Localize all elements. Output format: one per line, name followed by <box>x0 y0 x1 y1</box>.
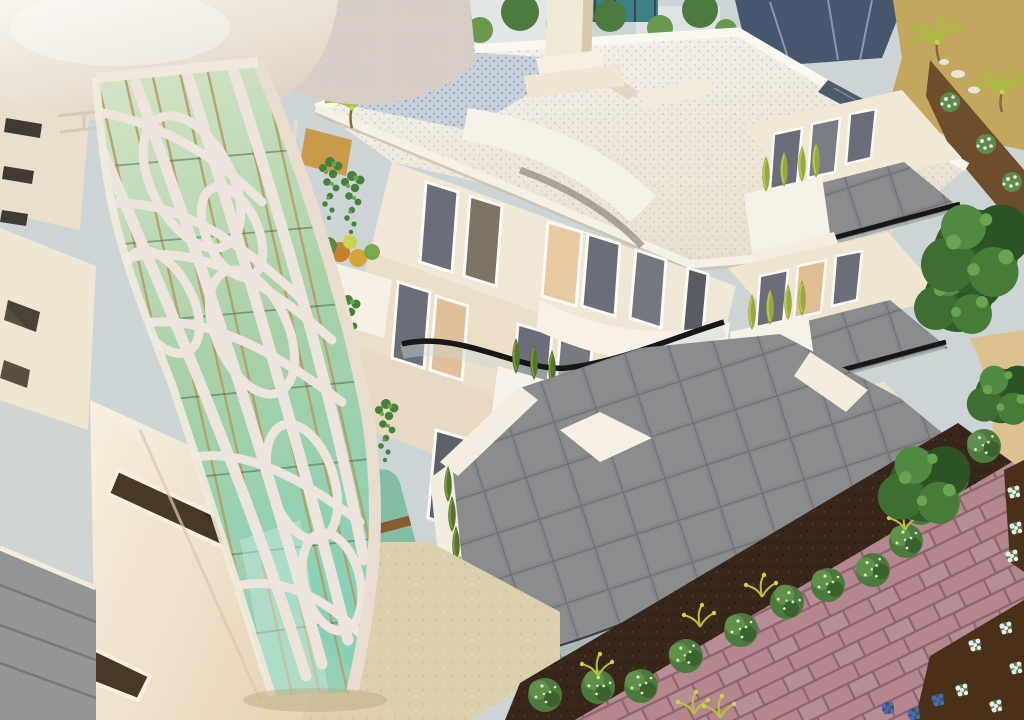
white-flowering-bush <box>1002 172 1022 192</box>
white-flowering-bush <box>940 92 960 112</box>
tree <box>967 366 1024 425</box>
window <box>464 196 502 286</box>
window <box>582 234 620 316</box>
window-warm-glow <box>430 296 468 380</box>
cypress-plant-yellow <box>748 294 756 330</box>
architectural-render <box>0 0 1024 720</box>
render-canvas <box>0 0 1024 720</box>
window <box>420 182 458 272</box>
hanging-ivy <box>319 157 343 220</box>
hanging-ivy <box>341 171 365 234</box>
garden-shrub <box>624 669 658 703</box>
garden-shrub <box>528 678 562 712</box>
window <box>630 250 666 328</box>
white-flowering-bush <box>976 134 996 154</box>
window-warm-glow <box>542 222 582 306</box>
garden-shrub <box>724 613 758 647</box>
garden-shrub <box>811 568 845 602</box>
